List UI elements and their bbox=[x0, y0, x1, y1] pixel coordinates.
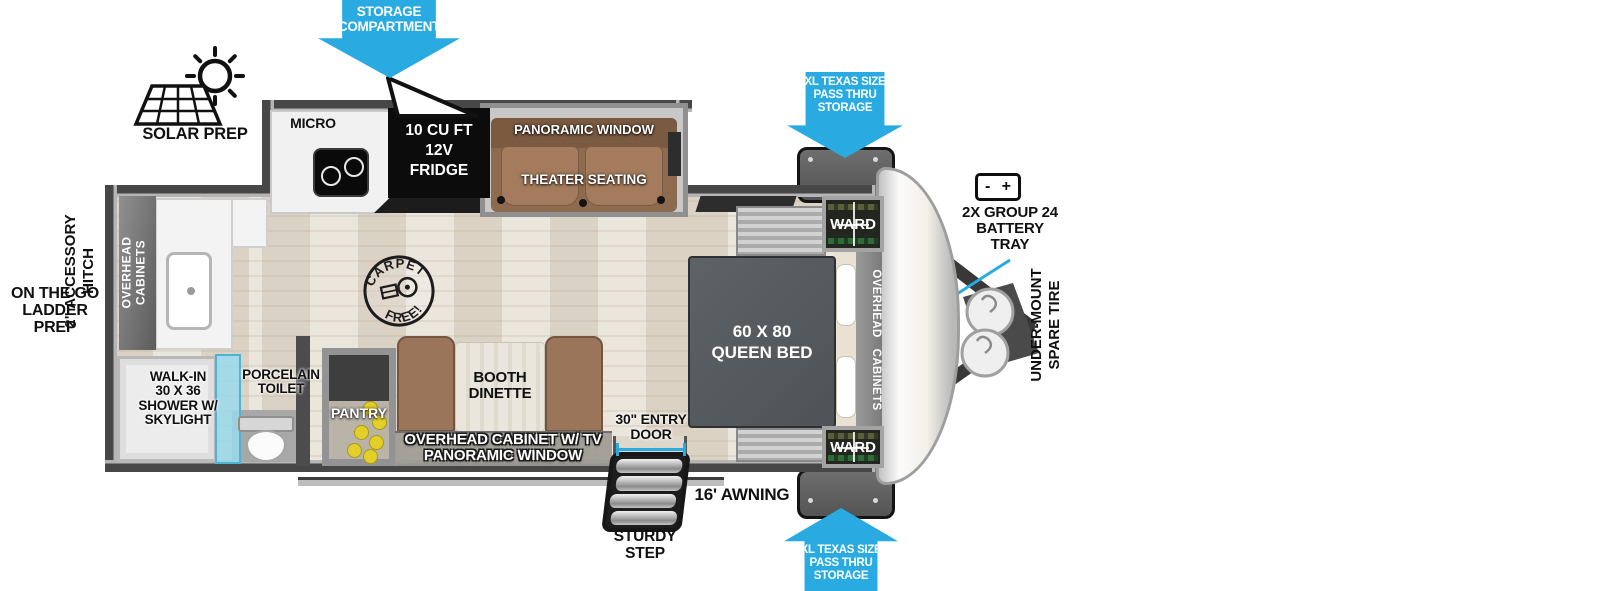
fridge-label: FRIDGE bbox=[388, 161, 490, 181]
pass-thru-label: XL TEXAS SIZE bbox=[775, 76, 915, 89]
burner-icon bbox=[321, 166, 341, 186]
dinette-bench-left bbox=[397, 336, 455, 432]
refrigerator: 10 CU FT 12V FRIDGE bbox=[388, 108, 490, 198]
step-tread bbox=[615, 459, 683, 473]
spare-tire-label: SPARE TIRE bbox=[1046, 252, 1064, 398]
storage-compartment-callout: STORAGE COMPARTMENT bbox=[318, 0, 460, 78]
pass-thru-label: PASS THRU bbox=[775, 89, 915, 102]
wardrobe-top-label: WARD bbox=[830, 216, 876, 233]
cooktop bbox=[313, 148, 369, 197]
dinette-label: BOOTH DINETTE bbox=[448, 370, 552, 402]
entry-steps bbox=[601, 452, 691, 532]
ladder-prep-label: ON THE GO LADDER PREP bbox=[0, 285, 110, 336]
burner-icon bbox=[344, 157, 364, 177]
bed-dresser-top bbox=[736, 206, 826, 256]
fridge-base bbox=[374, 197, 492, 213]
overhead-cabinets-front: OVERHEAD CABINETS bbox=[856, 248, 882, 432]
theater-seating-label: THEATER SEATING bbox=[485, 172, 683, 187]
toilet-label: PORCELAIN TOILET bbox=[228, 368, 334, 397]
solar-prep-icon bbox=[132, 40, 257, 132]
step-tread bbox=[610, 511, 678, 525]
battery-plus: + bbox=[1002, 178, 1011, 196]
queen-bed-label: QUEEN BED bbox=[711, 342, 812, 363]
wardrobe-bottom-label: WARD bbox=[830, 439, 876, 456]
awning-label: 16' AWNING bbox=[688, 486, 796, 504]
screw-icon bbox=[873, 498, 878, 503]
pantry-item bbox=[369, 435, 384, 450]
bathroom-partition-wall bbox=[296, 336, 310, 466]
queen-bed-label: 60 X 80 bbox=[733, 321, 792, 342]
spare-tire-callout: UNDER-MOUNT SPARE TIRE bbox=[1022, 252, 1078, 398]
storage-compartment-label: COMPARTMENT bbox=[306, 19, 472, 34]
wardrobe-bottom: WARD bbox=[822, 426, 884, 468]
door-measure-line bbox=[616, 448, 686, 451]
pass-thru-label: PASS THRU bbox=[772, 557, 910, 570]
fridge-label: 10 CU FT bbox=[388, 121, 490, 141]
microwave-label: MICRO bbox=[278, 116, 348, 131]
bathroom-sink bbox=[166, 252, 212, 330]
pantry-label: PANTRY bbox=[325, 405, 393, 421]
cupholder-icon bbox=[579, 199, 587, 207]
step-tread bbox=[609, 494, 677, 508]
solar-prep-label: SOLAR PREP bbox=[130, 126, 260, 144]
overhead-cabinets-rear-label: OVERHEAD bbox=[120, 196, 134, 350]
pass-thru-label: XL TEXAS SIZE bbox=[772, 544, 910, 557]
storage-door-flap-icon bbox=[380, 74, 480, 120]
cupholder-icon bbox=[657, 196, 665, 204]
pass-thru-top-callout: XL TEXAS SIZE PASS THRU STORAGE bbox=[787, 72, 903, 158]
door-measure-tick bbox=[616, 443, 619, 456]
pantry-item bbox=[354, 425, 369, 440]
door-measure-tick bbox=[683, 443, 686, 456]
theater-slideout: PANORAMIC WINDOW THEATER SEATING bbox=[480, 103, 688, 217]
cupholder-icon bbox=[497, 196, 505, 204]
overhead-cabinets-rear: OVERHEAD CABINETS bbox=[119, 196, 156, 350]
sink-drain-icon bbox=[187, 287, 195, 295]
pass-thru-label: STORAGE bbox=[772, 570, 910, 583]
pantry-item bbox=[347, 443, 362, 458]
storage-compartment-label: STORAGE bbox=[306, 4, 472, 19]
pass-thru-label: STORAGE bbox=[775, 102, 915, 115]
pillow bbox=[836, 356, 856, 418]
shower-label: WALK-IN 30 X 36 SHOWER W/ SKYLIGHT bbox=[112, 370, 244, 428]
pillow bbox=[836, 264, 856, 326]
entry-door-label: 30" ENTRY DOOR bbox=[604, 412, 698, 442]
pantry-item bbox=[363, 449, 378, 464]
overhead-cabinets-front-label: OVERHEAD bbox=[870, 269, 882, 337]
fridge-label: 12V bbox=[388, 141, 490, 161]
sturdy-step-label: STURDY STEP bbox=[595, 529, 695, 562]
wardrobe-top: WARD bbox=[822, 196, 884, 252]
battery-icon: - + bbox=[975, 173, 1021, 201]
pantry: PANTRY bbox=[322, 348, 396, 466]
floorplan-canvas: STORAGE COMPARTMENT XL TEXAS SIZE PASS T… bbox=[0, 0, 1600, 591]
overhead-cabinet-tv-label: OVERHEAD CABINET W/ TV PANORAMIC WINDOW bbox=[388, 432, 618, 464]
overhead-cabinets-rear-label: CABINETS bbox=[134, 196, 148, 350]
dinette-bench-right bbox=[545, 336, 603, 432]
pass-thru-bottom-callout: XL TEXAS SIZE PASS THRU STORAGE bbox=[784, 508, 898, 591]
overhead-cabinets-front-label: CABINETS bbox=[870, 349, 882, 411]
spare-tire-label: UNDER-MOUNT bbox=[1028, 252, 1046, 398]
panoramic-window-label: PANORAMIC WINDOW bbox=[485, 122, 683, 137]
slideout-side-window bbox=[668, 132, 681, 176]
queen-bed: 60 X 80 QUEEN BED bbox=[688, 256, 836, 428]
battery-tray-label: 2X GROUP 24 BATTERY TRAY bbox=[948, 205, 1072, 253]
step-tread bbox=[615, 476, 683, 490]
bed-dresser-bottom bbox=[736, 428, 826, 462]
screw-icon bbox=[808, 498, 813, 503]
battery-minus: - bbox=[985, 178, 990, 196]
